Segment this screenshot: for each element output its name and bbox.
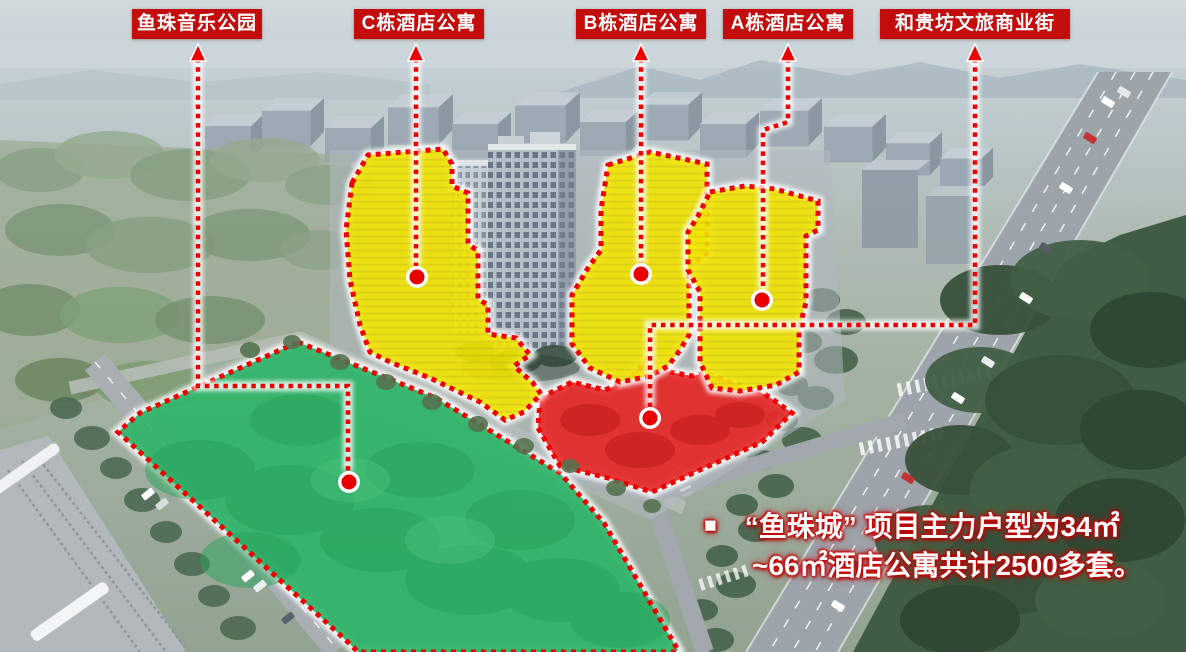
label-building-a: A栋酒店公寓 <box>723 9 853 39</box>
caption-line1-text: “鱼珠城” 项目主力户型为34㎡ <box>745 511 1120 542</box>
marker-heguifang <box>643 411 658 426</box>
marker-building-c <box>410 270 425 285</box>
river-band <box>0 40 1186 68</box>
label-yuzhu-music-park: 鱼珠音乐公园 <box>132 9 262 39</box>
caption-line-2: ~66㎡酒店公寓共计2500多套。 <box>704 546 1142 585</box>
marker-music-park <box>342 475 357 490</box>
label-building-b: B栋酒店公寓 <box>576 9 706 39</box>
label-building-c: C栋酒店公寓 <box>354 9 484 39</box>
marker-building-a <box>755 293 770 308</box>
label-heguifang-street: 和贵坊文旅商业街 <box>880 9 1070 39</box>
marker-building-b <box>634 267 649 282</box>
zone-building-a <box>688 186 818 391</box>
caption-line-1: ■“鱼珠城” 项目主力户型为34㎡ <box>704 506 1142 546</box>
project-caption: ■“鱼珠城” 项目主力户型为34㎡ ~66㎡酒店公寓共计2500多套。 <box>704 506 1142 585</box>
square-bullet-icon: ■ <box>704 506 717 545</box>
project-site-aerial-map: 鱼珠音乐公园 C栋酒店公寓 B栋酒店公寓 A栋酒店公寓 和贵坊文旅商业街 ■“鱼… <box>0 0 1186 652</box>
